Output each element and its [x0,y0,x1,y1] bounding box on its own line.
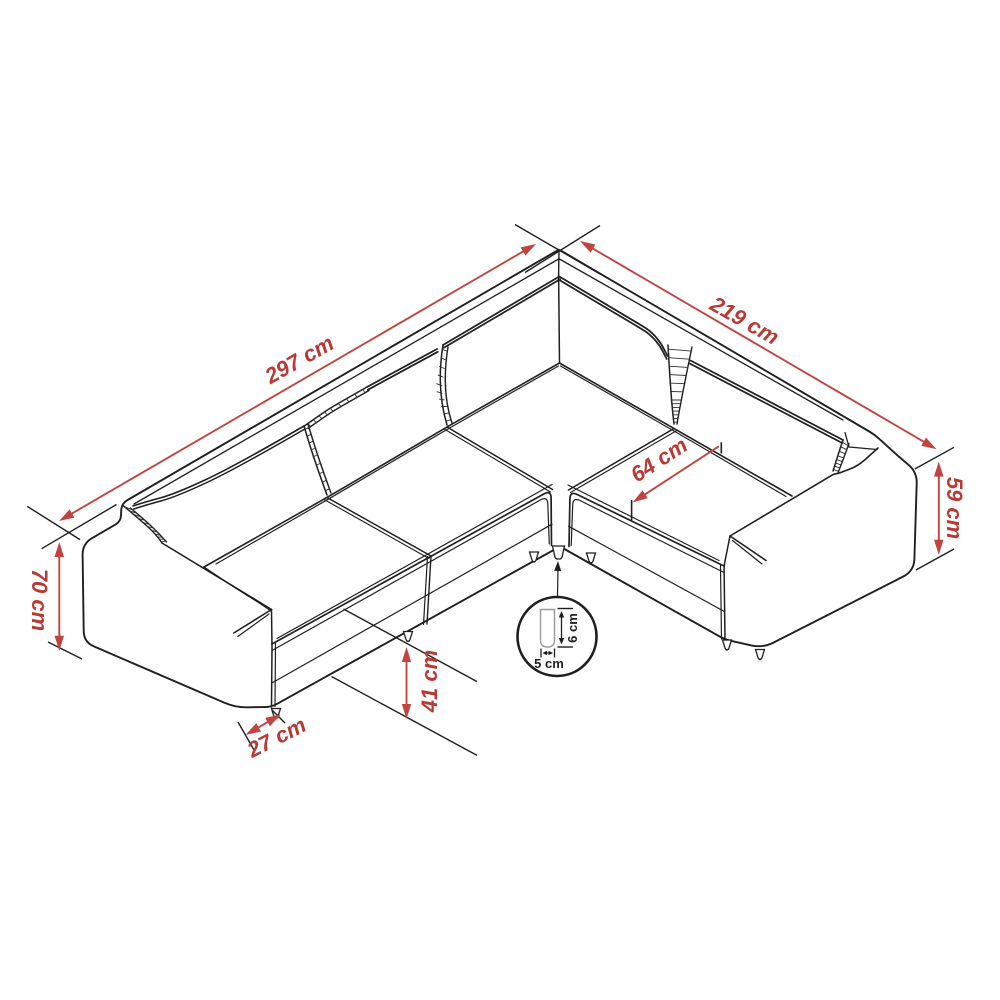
svg-text:41 cm: 41 cm [417,650,442,713]
svg-text:5 cm: 5 cm [534,656,564,671]
svg-text:70 cm: 70 cm [27,569,52,631]
svg-text:59 cm: 59 cm [942,477,967,539]
svg-text:6 cm: 6 cm [565,613,580,643]
